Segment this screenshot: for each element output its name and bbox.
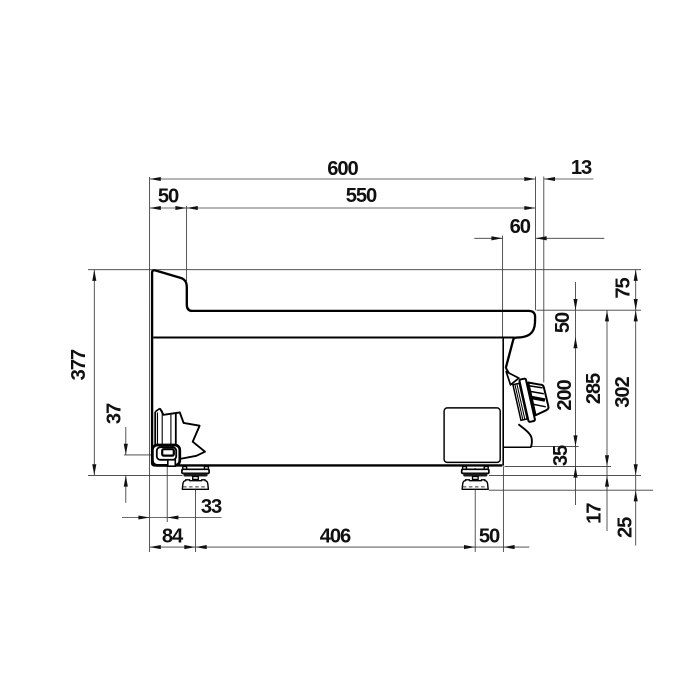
svg-text:33: 33 — [201, 496, 222, 518]
svg-text:302: 302 — [612, 376, 634, 407]
svg-text:50: 50 — [479, 525, 500, 547]
svg-text:37: 37 — [104, 403, 126, 424]
svg-text:17: 17 — [583, 503, 605, 524]
svg-text:13: 13 — [571, 157, 592, 179]
svg-text:200: 200 — [554, 379, 576, 410]
svg-text:50: 50 — [552, 312, 574, 333]
svg-text:377: 377 — [68, 349, 90, 380]
svg-text:84: 84 — [162, 526, 184, 548]
svg-text:285: 285 — [583, 373, 605, 404]
svg-text:60: 60 — [510, 216, 531, 238]
svg-text:600: 600 — [327, 158, 358, 180]
svg-text:75: 75 — [613, 278, 635, 299]
svg-text:550: 550 — [346, 185, 377, 207]
svg-text:25: 25 — [614, 517, 636, 538]
svg-text:50: 50 — [158, 185, 179, 207]
svg-text:35: 35 — [550, 445, 572, 466]
svg-text:406: 406 — [320, 526, 351, 548]
